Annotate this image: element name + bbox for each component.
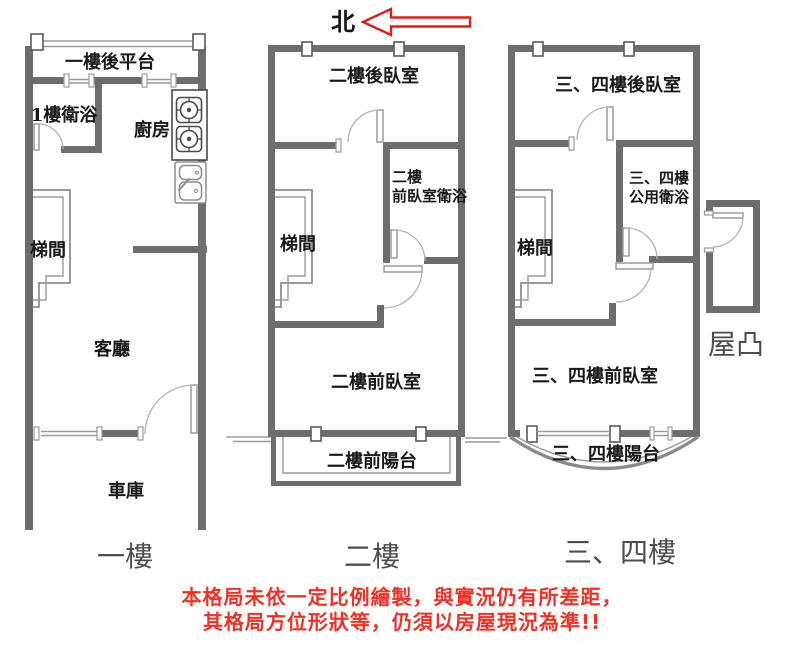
connector-lines-2-3 [465,438,507,442]
room-label-front-bath-2f-line2: 前臥室衛浴 [392,187,468,205]
window-post [31,34,43,50]
room-label-living-room: 客廳 [94,338,130,360]
roof-title: 屋凸 [708,328,764,361]
room-label-front-bedroom-34f: 三、四樓前臥室 [532,365,658,387]
shared-bathroom-door-34f [623,228,657,259]
north-label: 北 [331,7,355,36]
room-label-front-bedroom-2f: 二樓前臥室 [331,371,421,393]
bathroom-door-2f [391,230,425,261]
room-label-rear-platform: 一樓後平台 [65,51,155,73]
floor2-title: 二樓 [344,540,400,573]
bathroom-door [34,124,63,150]
room-label-garage: 車庫 [108,480,144,502]
floor1-top-window [31,34,205,50]
room-label-stairwell-1f: 梯間 [30,239,66,261]
floor34-title: 三、四樓 [564,536,676,569]
room-label-stairwell-2f: 梯間 [280,233,316,255]
floor34-bottom-windows [537,427,672,440]
room-label-rear-bedroom-2f: 二樓後臥室 [329,65,419,87]
room-label-rear-bedroom-34f: 三、四樓後臥室 [555,74,681,96]
disclaimer-line1: 本格局未依一定比例繪製，與實況仍有所差距， [182,585,623,609]
disclaimer-line2: 其格局方位形狀等，仍須以房屋現況為準!! [203,610,601,634]
room-label-stairwell-34f: 梯間 [517,237,553,259]
front-bedroom-door-34f [616,263,653,302]
room-label-bathroom-1f: 1樓衛浴 [31,104,99,126]
plan-floor1: 一樓後平台 1樓衛浴 廚房 梯間 客廳 車庫 一樓 [25,34,207,573]
room-label-shared-bath-line2: 公用衛浴 [629,188,690,206]
floor1-title: 一樓 [97,540,153,573]
plan-floor34: 三、四樓後臥室 三、四樓 公用衛浴 梯間 三、四樓前臥室 三、四樓陽台 三、四樓 [508,42,700,569]
disclaimer-text: 本格局未依一定比例繪製，與實況仍有所差距， 其格局方位形狀等，仍須以房屋現況為準… [182,585,623,634]
sink-icon [175,162,206,203]
room-label-kitchen: 廚房 [134,119,170,141]
connector-lines-1-2 [226,437,271,442]
garage-door [145,385,197,434]
stove-icon [172,90,207,160]
rear-bedroom-door-34f [569,107,613,150]
room-label-shared-bath-line1: 三、四樓 [629,169,689,187]
north-indicator: 北 [331,7,470,36]
roof-door [705,211,744,252]
room-label-front-balcony-2f: 二樓前陽台 [327,450,417,472]
plan-roof-bump: 屋凸 [705,200,765,361]
window-post [193,34,205,50]
room-label-balcony-34f: 三、四樓陽台 [552,443,660,465]
front-bedroom-door-2f [384,266,422,308]
plan-floor2: 二樓後臥室 二樓 前臥室衛浴 梯間 二樓前臥室 二樓前陽台 二樓 [268,42,468,573]
rear-bedroom-door-2f [336,110,383,152]
north-arrow-icon [363,9,470,35]
room-label-front-bath-2f-line1: 二樓 [392,168,422,186]
floor-plan-page: 北 [0,0,790,647]
floor-plan-diagram: 北 [0,0,790,647]
